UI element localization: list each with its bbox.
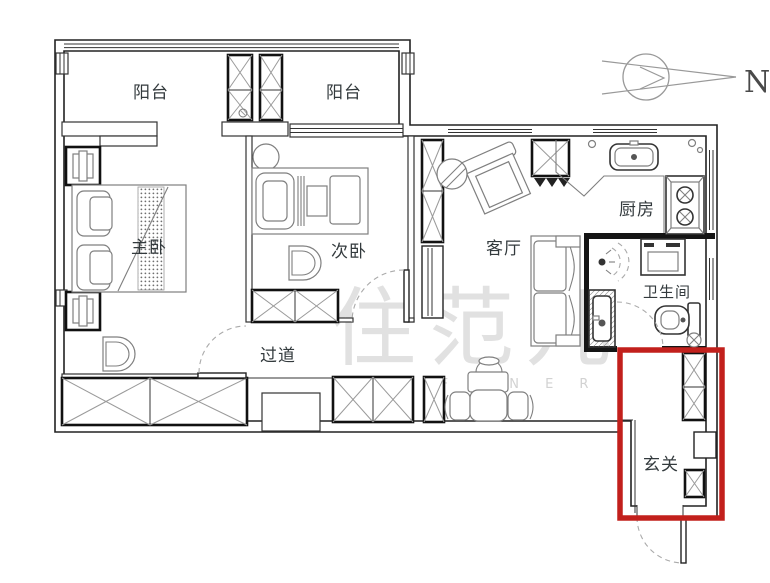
vanity-chair	[103, 337, 135, 371]
dining-chair	[508, 392, 528, 420]
nightstand	[66, 147, 100, 185]
dining-table	[468, 372, 508, 392]
window-second-bedroom	[290, 124, 403, 137]
wall-post	[402, 53, 414, 74]
single-bed	[252, 168, 368, 234]
wall-balcony-mid	[222, 122, 288, 136]
entry-niche	[694, 432, 716, 458]
stove	[666, 176, 704, 234]
balcony-cabinet	[260, 55, 282, 120]
wall-post	[56, 53, 68, 74]
washing-machine	[641, 239, 685, 275]
entry-shoe-cabinet	[683, 353, 705, 420]
bed-tray	[307, 186, 327, 216]
side-table	[437, 159, 467, 189]
second-bedroom-wardrobe	[252, 290, 338, 322]
fan	[253, 144, 279, 170]
dining-chair	[450, 392, 470, 420]
wall-balcony-master	[62, 122, 157, 136]
nightstand	[66, 292, 100, 330]
bathroom-vanity	[589, 290, 615, 347]
label-master-bedroom: 主卧	[131, 238, 167, 258]
label-bathroom: 卫生间	[643, 283, 691, 301]
label-hallway: 过道	[260, 346, 296, 366]
label-balcony-left: 阳台	[133, 83, 169, 103]
wall-duct	[262, 393, 320, 431]
master-bedroom-door	[198, 326, 246, 378]
label-entryway: 玄关	[643, 455, 679, 475]
label-kitchen: 厨房	[619, 200, 655, 220]
floor-plan: 住范儿 Z H U F A N E R	[0, 0, 770, 583]
balcony-cabinet	[228, 55, 252, 120]
kitchen-sink	[610, 141, 658, 170]
desk-chair	[289, 246, 321, 280]
master-bedroom-furniture	[66, 147, 186, 371]
teapot	[479, 357, 499, 365]
label-balcony-right: 阳台	[326, 83, 362, 103]
hallway-wardrobe	[62, 378, 247, 425]
floor-drain	[687, 333, 701, 347]
label-second-bedroom: 次卧	[331, 242, 367, 262]
toilet	[655, 303, 700, 337]
corridor-cabinet-narrow	[424, 377, 444, 422]
floor-plan-page: 住范儿 Z H U F A N E R	[0, 0, 770, 583]
label-living-room: 客厅	[486, 239, 522, 259]
compass-needle	[640, 67, 664, 89]
double-bed	[72, 185, 186, 292]
sofa	[531, 236, 580, 346]
entry-cabinet-low	[685, 470, 704, 497]
dining-chair	[470, 390, 507, 421]
compass: N	[602, 54, 770, 100]
shower-head	[599, 243, 629, 281]
tv-cabinet	[532, 140, 570, 187]
entry-door	[637, 517, 686, 563]
compass-north-label: N	[744, 65, 770, 100]
corridor-cabinet	[333, 377, 413, 422]
armchair	[458, 141, 534, 216]
